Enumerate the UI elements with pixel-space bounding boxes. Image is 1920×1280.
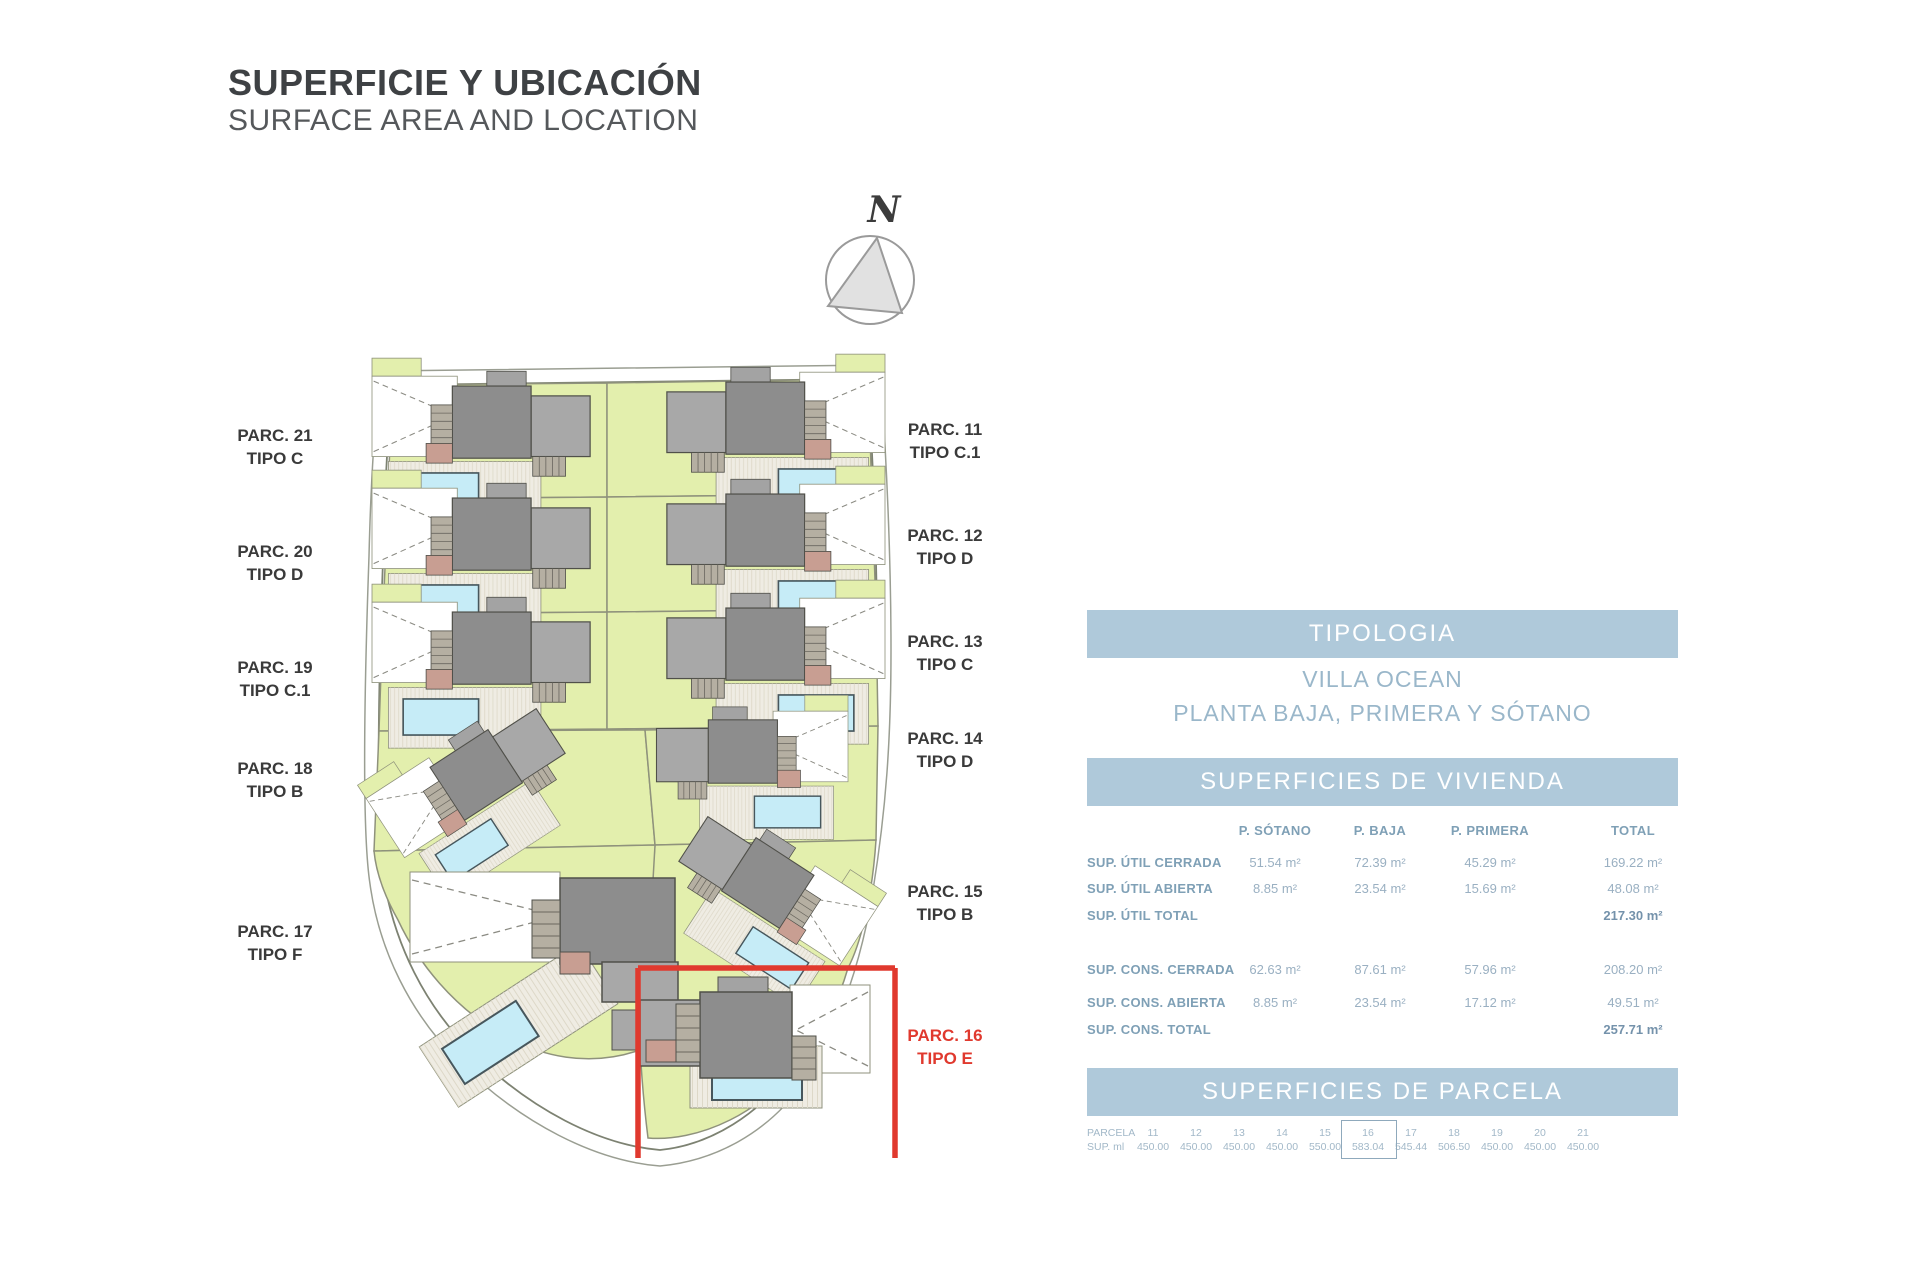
parcel-label-21: PARC. 21TIPO C (237, 424, 312, 470)
row-label: SUP. ÚTIL TOTAL (1087, 908, 1198, 923)
cell-value: 208.20 m² (1568, 962, 1698, 977)
compass-north-letter: N (867, 189, 903, 231)
page-subtitle: SURFACE AREA AND LOCATION (228, 104, 698, 138)
parcel-label-12: PARC. 12TIPO D (907, 524, 982, 570)
cell-value: 45.29 m² (1425, 855, 1555, 870)
parcel-label-19: PARC. 19TIPO C.1 (237, 656, 312, 702)
cell-value: 169.22 m² (1568, 855, 1698, 870)
parcel-label-11: PARC. 11TIPO C.1 (908, 418, 982, 464)
row-label: SUP. CONS. TOTAL (1087, 1022, 1211, 1037)
cell-value: 49.51 m² (1568, 995, 1698, 1010)
page-title: SUPERFICIE Y UBICACIÓN (228, 62, 702, 104)
parcel-label-14: PARC. 14TIPO D (907, 727, 982, 773)
cell-value-total: 217.30 m² (1568, 908, 1698, 923)
column-header-primera: P. PRIMERA (1425, 823, 1555, 838)
brochure-page: N SUPERFICIE Y UBICACIÓN SURFACE AREA AN… (0, 0, 1920, 1280)
cell-value-total: 257.71 m² (1568, 1022, 1698, 1037)
cell-value: 48.08 m² (1568, 881, 1698, 896)
parcel-label-20: PARC. 20TIPO D (237, 540, 312, 586)
parcel-label-17: PARC. 17TIPO F (237, 920, 312, 966)
row-label: SUP. ÚTIL CERRADA (1087, 855, 1222, 870)
parcela-header-band: SUPERFICIES DE PARCELA (1087, 1068, 1678, 1116)
cell-value: 17.12 m² (1425, 995, 1555, 1010)
north-compass-icon: N (826, 189, 914, 324)
parcela-number: 21 (1555, 1127, 1611, 1139)
parcela-surface: 450.00 (1555, 1141, 1611, 1153)
parcel-label-18: PARC. 18TIPO B (237, 757, 312, 803)
parcela-sup-row-label: SUP. ml (1087, 1141, 1124, 1153)
vivienda-header-band: SUPERFICIES DE VIVIENDA (1087, 758, 1678, 806)
cell-value: 15.69 m² (1425, 881, 1555, 896)
column-header-total: TOTAL (1568, 823, 1698, 838)
parcel-label-16-highlighted: PARC. 16TIPO E (907, 1024, 982, 1070)
villa-name: VILLA OCEAN (1087, 666, 1678, 693)
row-label: SUP. ÚTIL ABIERTA (1087, 881, 1213, 896)
tipologia-header-band: TIPOLOGIA (1087, 610, 1678, 658)
row-label: SUP. CONS. ABIERTA (1087, 995, 1226, 1010)
cell-value: 57.96 m² (1425, 962, 1555, 977)
parcel-label-15: PARC. 15TIPO B (907, 880, 982, 926)
parcel-label-13: PARC. 13TIPO C (907, 630, 982, 676)
parcela-16-highlight-box (1341, 1120, 1397, 1159)
villa-floors: PLANTA BAJA, PRIMERA Y SÓTANO (1087, 700, 1678, 727)
